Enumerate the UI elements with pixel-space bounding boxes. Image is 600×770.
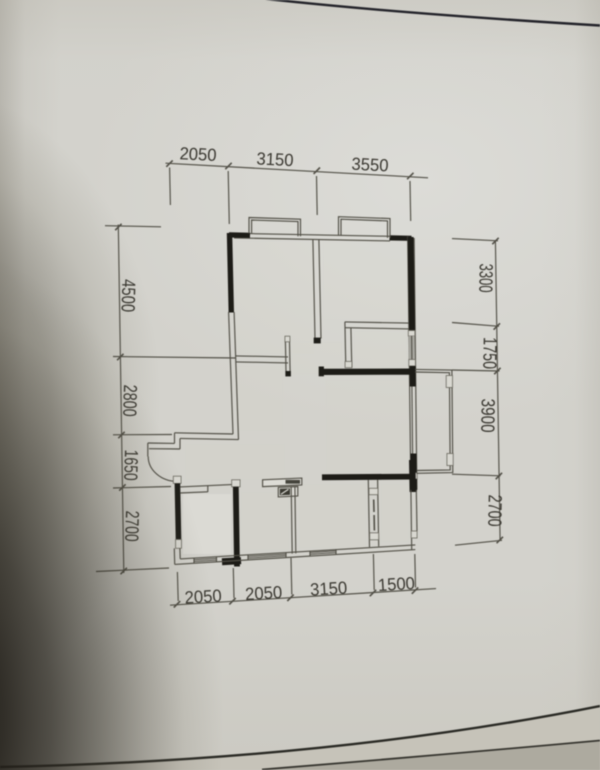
svg-text:3550: 3550	[351, 154, 389, 176]
svg-text:2050: 2050	[245, 582, 283, 604]
svg-text:4500: 4500	[117, 279, 139, 313]
svg-text:1750: 1750	[478, 337, 500, 369]
svg-text:2050: 2050	[184, 585, 222, 607]
svg-text:3900: 3900	[476, 398, 498, 432]
svg-text:1650: 1650	[119, 449, 141, 481]
svg-text:1500: 1500	[377, 573, 415, 595]
svg-text:3300: 3300	[474, 263, 496, 292]
svg-text:2050: 2050	[179, 143, 217, 165]
svg-text:3150: 3150	[256, 148, 294, 170]
svg-text:2800: 2800	[118, 384, 140, 417]
svg-text:2700: 2700	[483, 494, 505, 526]
svg-text:3150: 3150	[310, 577, 348, 599]
svg-text:2700: 2700	[120, 510, 142, 542]
